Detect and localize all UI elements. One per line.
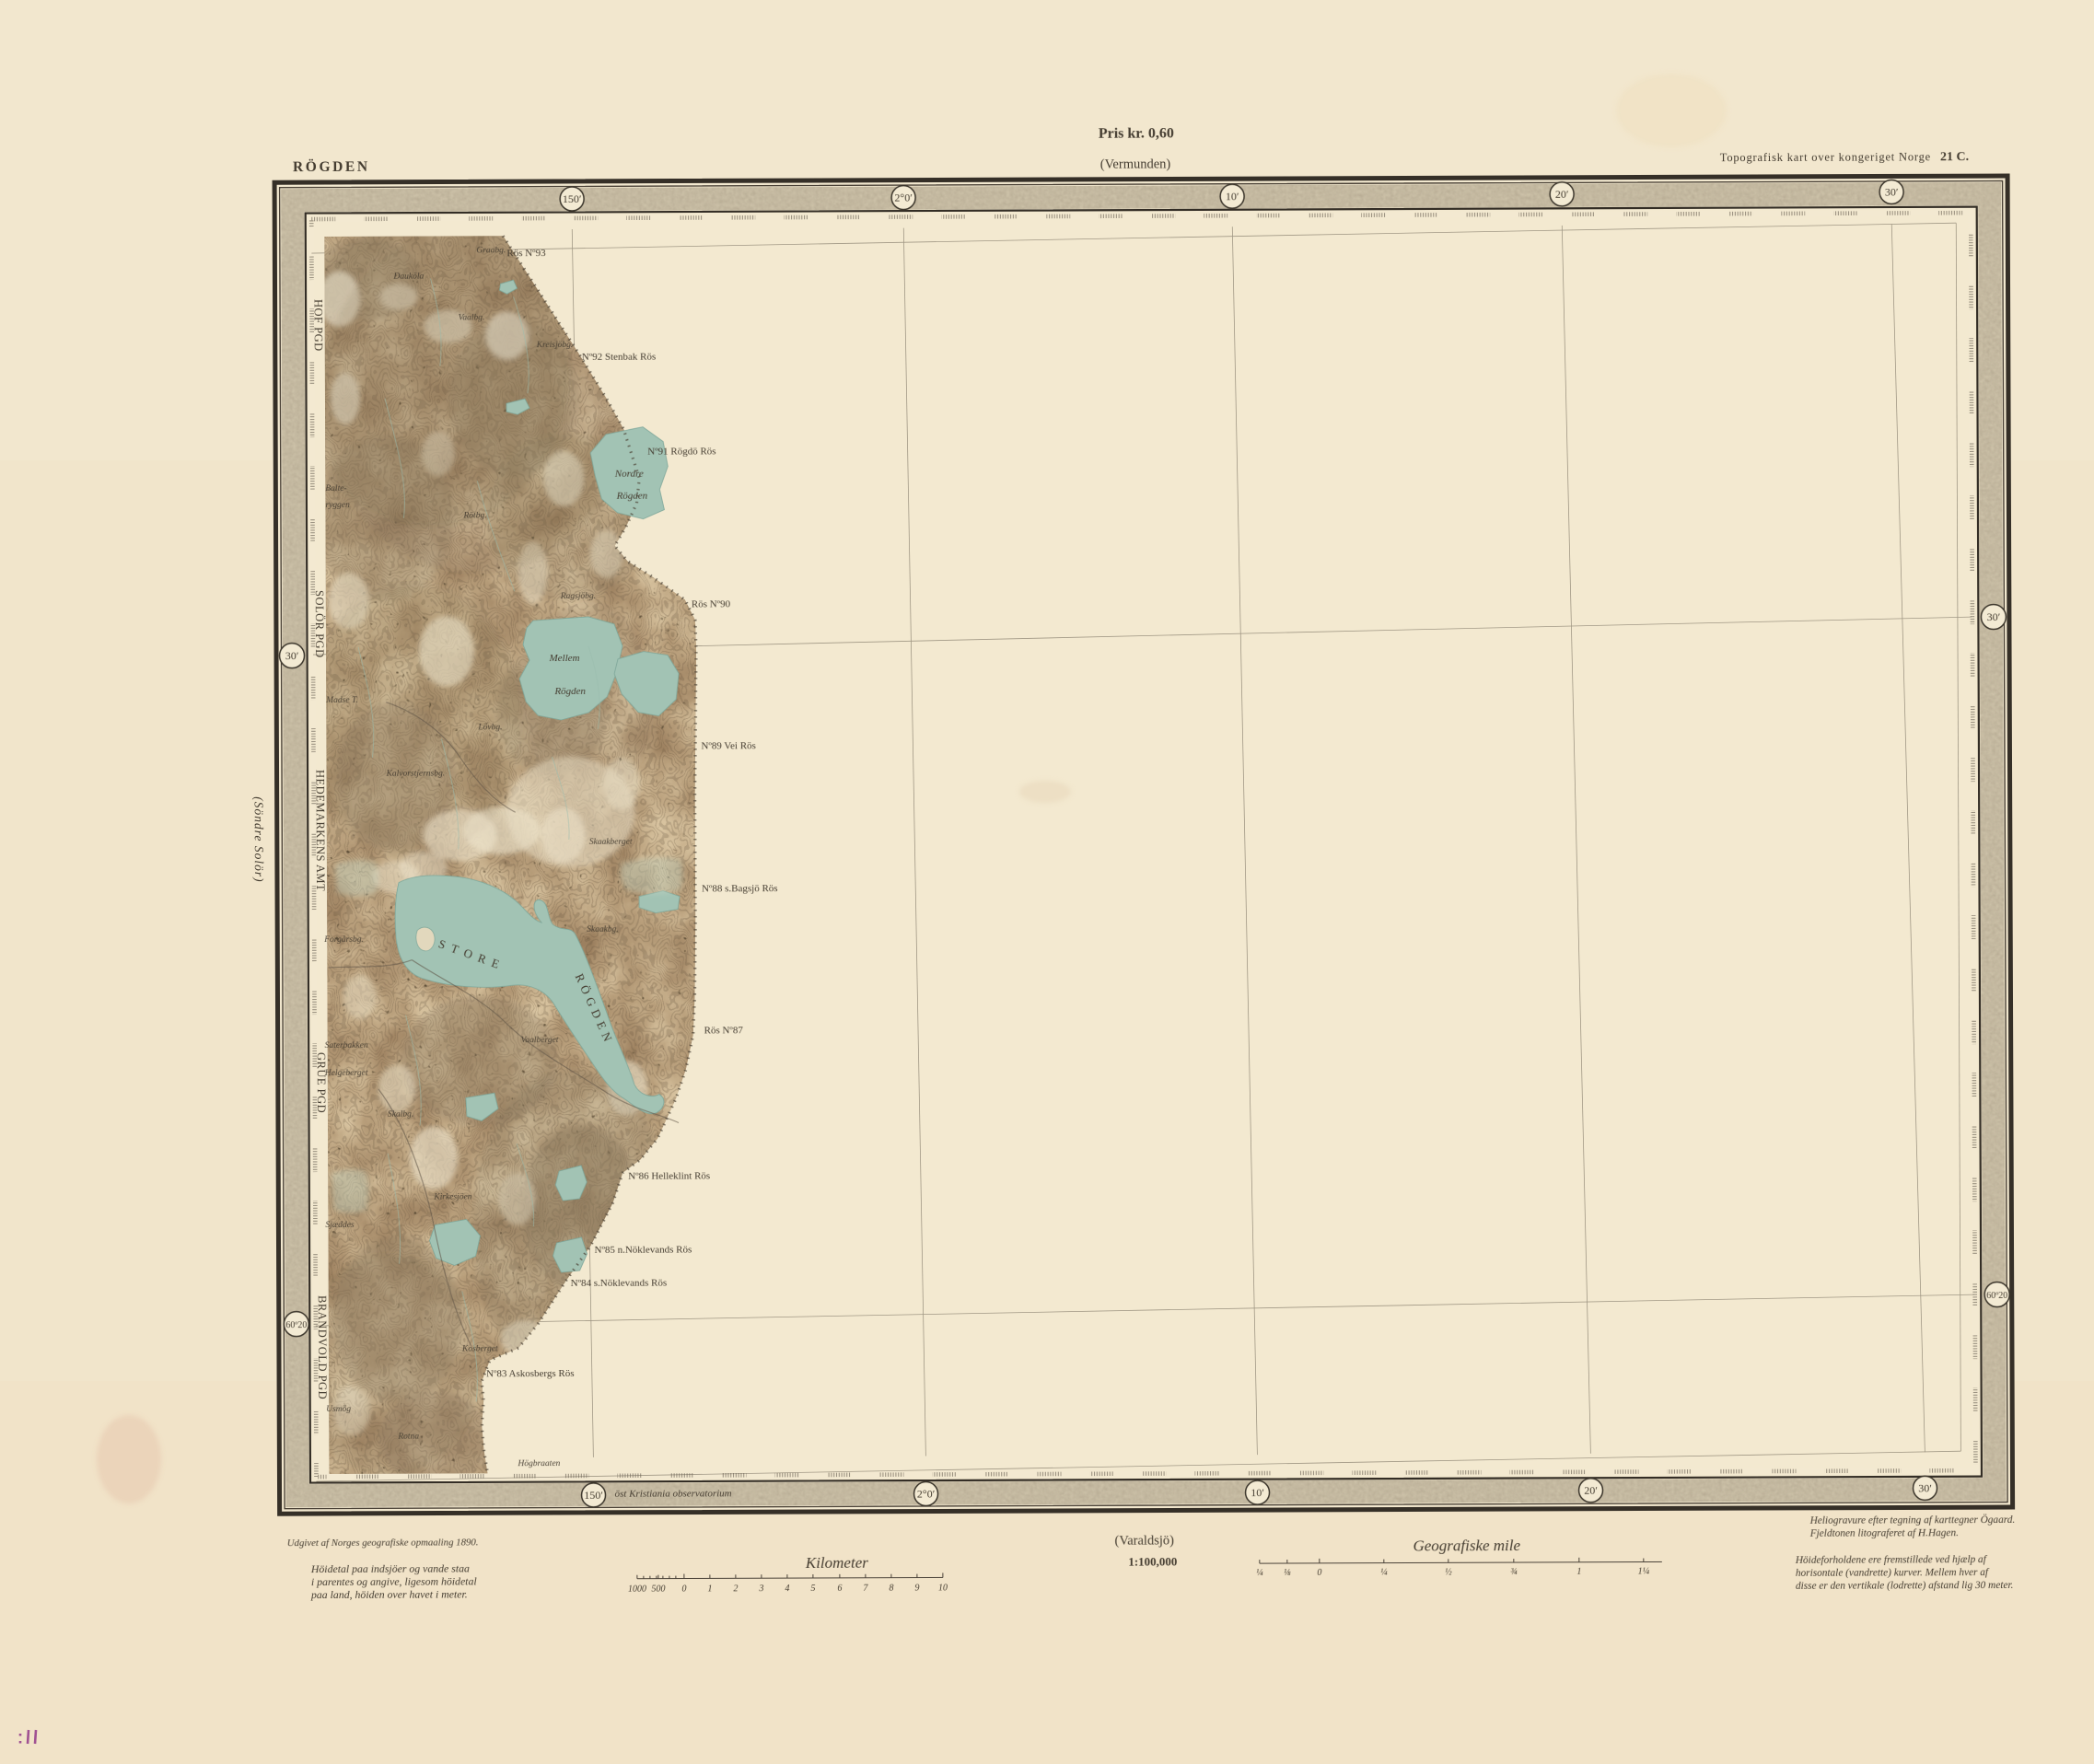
svg-text:Fjeldtonen litograferet af H.H: Fjeldtonen litograferet af H.Hagen.	[1809, 1527, 1959, 1539]
svg-text:Graabg.: Graabg.	[476, 246, 506, 255]
svg-text:Kalvorstjernsbg.: Kalvorstjernsbg.	[386, 770, 446, 779]
svg-text:Heliogravure efter tegning af: Heliogravure efter tegning af karttegner…	[1809, 1514, 2016, 1526]
svg-text:Forgårsbg.: Forgårsbg.	[323, 934, 364, 945]
svg-text:Rögden: Rögden	[616, 491, 648, 502]
svg-text:150′: 150′	[563, 192, 582, 205]
svg-text:Nº89 Vei Rös: Nº89 Vei Rös	[701, 740, 755, 751]
svg-text:HEDEMARKENS AMT: HEDEMARKENS AMT	[314, 770, 328, 891]
svg-text:paa land, höiden over havet i: paa land, höiden over havet i meter.	[310, 1587, 468, 1601]
svg-text:Nº85 n.Nöklevands Rös: Nº85 n.Nöklevands Rös	[595, 1244, 692, 1255]
svg-text:Kirkesjöen: Kirkesjöen	[433, 1192, 471, 1201]
svg-text:Rös Nº93: Rös Nº93	[506, 248, 546, 259]
svg-text:Topografisk kart over kongerig: Topografisk kart over kongeriget Norge	[1720, 150, 1931, 164]
svg-text:SOLÖR PGD: SOLÖR PGD	[313, 590, 326, 658]
svg-text:6: 6	[837, 1584, 842, 1594]
svg-text:Vaalberget: Vaalberget	[521, 1036, 559, 1045]
svg-text:1000: 1000	[628, 1584, 646, 1595]
svg-text:Skalbg.: Skalbg.	[388, 1110, 413, 1120]
svg-text:30′: 30′	[285, 649, 299, 662]
svg-text:2: 2	[733, 1584, 738, 1594]
svg-text:Kilometer: Kilometer	[805, 1554, 868, 1572]
svg-text:i parentes og angive, ligesom: i parentes og angive, ligesom höidetal	[311, 1574, 478, 1588]
svg-text:Nº83 Askosbergs Rös: Nº83 Askosbergs Rös	[486, 1368, 575, 1379]
svg-text:Balte-: Balte-	[325, 484, 346, 493]
svg-text:Ragsjöbg.: Ragsjöbg.	[560, 592, 596, 601]
svg-text:Rös Nº87: Rös Nº87	[704, 1025, 744, 1036]
svg-text:¼: ¼	[1256, 1568, 1263, 1578]
svg-text:Nº88 s.Bagsjö Rös: Nº88 s.Bagsjö Rös	[702, 883, 778, 894]
svg-text:Rötbg.: Rötbg.	[462, 511, 486, 520]
svg-text:(Varaldsjö): (Varaldsjö)	[1115, 1533, 1175, 1548]
svg-text:Högbraaten: Högbraaten	[517, 1459, 560, 1468]
svg-text:horisontale (vandrette) kurver: horisontale (vandrette) kurver. Mellem h…	[1796, 1567, 1990, 1579]
svg-text:Rotna: Rotna	[397, 1433, 419, 1442]
svg-text:Sjæddes: Sjæddes	[325, 1221, 354, 1230]
svg-text:Lövbg.: Lövbg.	[477, 723, 502, 732]
svg-text:¾: ¾	[1510, 1567, 1518, 1577]
svg-text:Usmög: Usmög	[326, 1405, 351, 1414]
svg-text:500: 500	[651, 1584, 665, 1595]
svg-text:10′: 10′	[1251, 1486, 1264, 1499]
svg-text:Nº84 s.Nöklevands Rös: Nº84 s.Nöklevands Rös	[571, 1278, 668, 1289]
svg-text:30′: 30′	[1918, 1481, 1932, 1494]
svg-text:⅛: ⅛	[1284, 1568, 1291, 1578]
svg-text:Helgeberget: Helgeberget	[324, 1069, 368, 1078]
svg-text:Höideforholdene ere fremstille: Höideforholdene ere fremstillede ved hjæ…	[1795, 1554, 1988, 1566]
svg-text:Rös Nº90: Rös Nº90	[692, 598, 731, 609]
svg-text:öst Kristiania observatorium: öst Kristiania observatorium	[615, 1488, 732, 1499]
svg-text:9: 9	[914, 1584, 919, 1594]
svg-text:Dauköla: Dauköla	[392, 273, 424, 282]
svg-text:Rögden: Rögden	[553, 686, 586, 697]
svg-text:Pris kr. 0,60: Pris kr. 0,60	[1099, 125, 1174, 141]
svg-text:2°0′: 2°0′	[917, 1487, 936, 1500]
svg-text:Nº92 Stenbak Rös: Nº92 Stenbak Rös	[582, 352, 656, 363]
svg-text:(Vermunden): (Vermunden)	[1100, 157, 1171, 171]
svg-text:30′: 30′	[1987, 610, 2001, 623]
svg-text:Skaakbg.: Skaakbg.	[587, 925, 619, 934]
svg-text:1:100,000: 1:100,000	[1128, 1554, 1177, 1568]
svg-text:ryggen: ryggen	[325, 501, 350, 510]
svg-text:Geografiske mile: Geografiske mile	[1413, 1537, 1520, 1554]
svg-text:20′: 20′	[1584, 1484, 1598, 1497]
svg-text:Madse T.: Madse T.	[325, 696, 358, 705]
svg-text:0: 0	[1317, 1568, 1321, 1578]
svg-text:Udgivet af Norges geografiske: Udgivet af Norges geografiske opmaaling …	[287, 1537, 479, 1549]
svg-text:¼: ¼	[1380, 1568, 1388, 1578]
svg-text:21 C.: 21 C.	[1940, 150, 1969, 164]
svg-text:Höidetal paa indsjöer og vande: Höidetal paa indsjöer og vande staa	[310, 1561, 470, 1575]
svg-text:Kreisjöbg.: Kreisjöbg.	[536, 341, 574, 350]
svg-text:30′: 30′	[1885, 185, 1899, 198]
svg-text:Nordre: Nordre	[614, 469, 644, 480]
svg-text:Kosberget: Kosberget	[461, 1344, 498, 1353]
svg-text:Saterbakken: Saterbakken	[325, 1041, 368, 1050]
svg-text:BRANDVOLD PGD: BRANDVOLD PGD	[316, 1295, 329, 1399]
svg-text:Skaakberget: Skaakberget	[589, 838, 633, 847]
svg-text:1¼: 1¼	[1638, 1566, 1650, 1576]
svg-text:10: 10	[938, 1583, 948, 1593]
svg-text:20′: 20′	[1555, 188, 1569, 201]
svg-text:Nº91 Rögdö Rös: Nº91 Rögdö Rös	[647, 446, 715, 457]
svg-text:60º20: 60º20	[1986, 1291, 2007, 1301]
svg-text:1: 1	[1576, 1567, 1581, 1577]
svg-text:150′: 150′	[584, 1489, 603, 1502]
svg-text:3: 3	[758, 1584, 763, 1594]
svg-text:60º20: 60º20	[285, 1320, 307, 1330]
svg-text:HOF PGD: HOF PGD	[312, 299, 325, 352]
svg-text:½: ½	[1445, 1567, 1452, 1577]
svg-text:Vaalbg.: Vaalbg.	[459, 313, 485, 322]
svg-text:10′: 10′	[1226, 190, 1239, 203]
svg-text:Mellem: Mellem	[549, 653, 580, 664]
svg-text:4: 4	[785, 1584, 789, 1594]
svg-text:(Söndre Solör): (Söndre Solör)	[252, 796, 266, 882]
svg-text:5: 5	[810, 1584, 815, 1594]
svg-text:Nº86 Helleklint Rös: Nº86 Helleklint Rös	[628, 1170, 710, 1181]
svg-text:0: 0	[681, 1584, 686, 1595]
svg-text:RÖGDEN: RÖGDEN	[293, 159, 370, 175]
svg-text:8: 8	[889, 1584, 893, 1594]
svg-text:1: 1	[707, 1584, 712, 1594]
svg-text:2°0′: 2°0′	[894, 191, 913, 204]
svg-text:GRUE PGD: GRUE PGD	[315, 1052, 328, 1113]
svg-text:disse er den vertikale (lodret: disse er den vertikale (lodrette) afstan…	[1796, 1580, 2013, 1592]
